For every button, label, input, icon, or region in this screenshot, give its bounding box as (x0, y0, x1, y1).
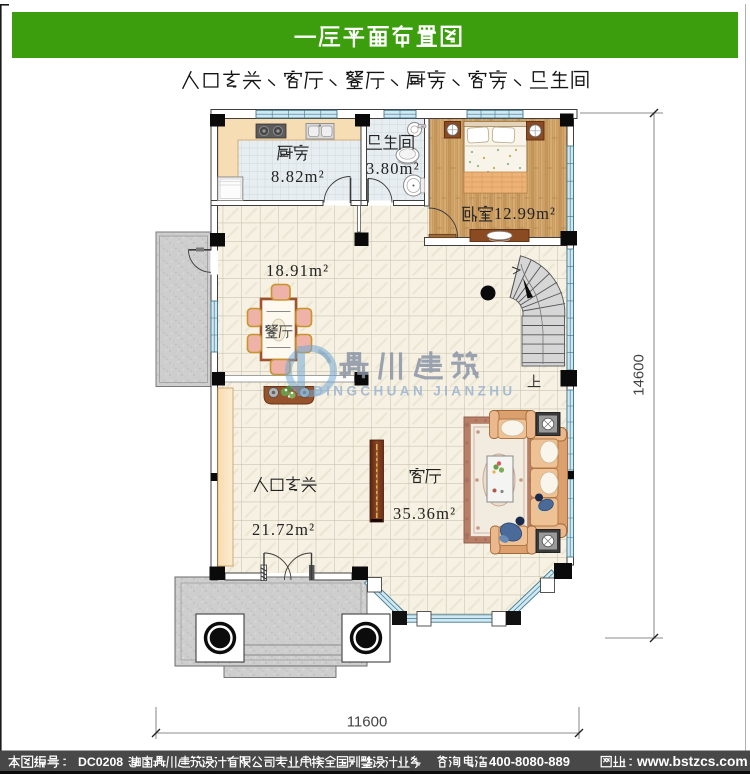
svg-text:8.82m²: 8.82m² (271, 167, 325, 186)
svg-text:12.99m²: 12.99m² (494, 204, 556, 223)
svg-text:400-8080-889: 400-8080-889 (489, 754, 570, 769)
svg-text:3.80m²: 3.80m² (366, 159, 420, 178)
svg-text:DC0208: DC0208 (78, 755, 123, 769)
svg-text:www.bstzcs.com: www.bstzcs.com (636, 754, 748, 769)
svg-text:14600: 14600 (631, 354, 648, 396)
svg-text:35.36m²: 35.36m² (393, 504, 456, 523)
svg-text:11600: 11600 (347, 714, 388, 731)
svg-text:18.91m²: 18.91m² (266, 261, 329, 280)
svg-text:DINGCHUAN JIANZHU: DINGCHUAN JIANZHU (313, 384, 516, 399)
svg-text:21.72m²: 21.72m² (252, 520, 315, 539)
